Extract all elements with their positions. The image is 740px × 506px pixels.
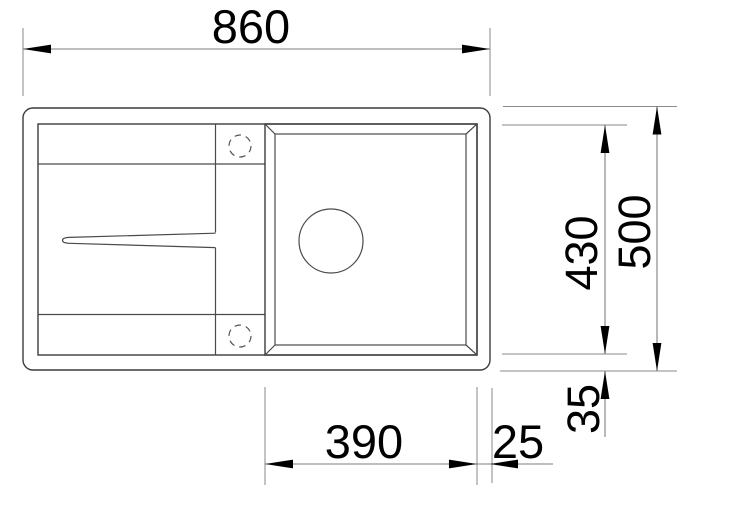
drainboard-groove [63, 233, 216, 247]
dimension-annotations: 860 500 430 [23, 0, 677, 485]
dim-label-overall-depth: 500 [609, 194, 660, 269]
arrow-up-icon [653, 107, 662, 135]
dim-label-bowl-width: 390 [325, 415, 403, 468]
dim-label-overall-width: 860 [212, 0, 290, 53]
bowl-outer-edge [265, 124, 477, 355]
sink-outer-edge [23, 108, 490, 370]
drain-hole [299, 209, 363, 273]
dim-label-inner-depth: 430 [556, 215, 607, 290]
arrow-right-icon [449, 460, 477, 469]
arrow-down-icon [601, 326, 610, 354]
sink-inner-rim [38, 124, 477, 355]
tap-hole-top-icon [229, 135, 251, 157]
arrow-down-icon [653, 343, 662, 371]
dim-bowl-right-offset: 25 [477, 388, 553, 483]
arrow-up-icon [601, 125, 610, 153]
bowl-chamfer-bottom-right [466, 345, 477, 355]
bowl-inner-edge [275, 134, 466, 345]
sink-bowl [265, 124, 477, 355]
tap-hole-bottom-icon [229, 325, 251, 347]
technical-drawing-canvas: 860 500 430 [0, 0, 740, 506]
bowl-chamfer-top-left [265, 124, 275, 134]
sink-top-view [23, 108, 490, 370]
dim-bowl-width: 390 [265, 387, 477, 485]
arrow-left-icon [23, 45, 51, 54]
dim-label-bottom-rim-offset: 35 [558, 384, 609, 434]
dim-bottom-rim-offset: 35 [558, 371, 609, 437]
dim-overall-width: 860 [23, 0, 490, 96]
sink-dimension-drawing: 860 500 430 [0, 0, 740, 506]
dim-label-bowl-right-offset: 25 [492, 415, 544, 468]
arrow-left-icon [265, 460, 293, 469]
arrow-right-icon [462, 45, 490, 54]
bowl-chamfer-bottom-left [265, 345, 275, 355]
bowl-chamfer-top-right [466, 124, 477, 134]
